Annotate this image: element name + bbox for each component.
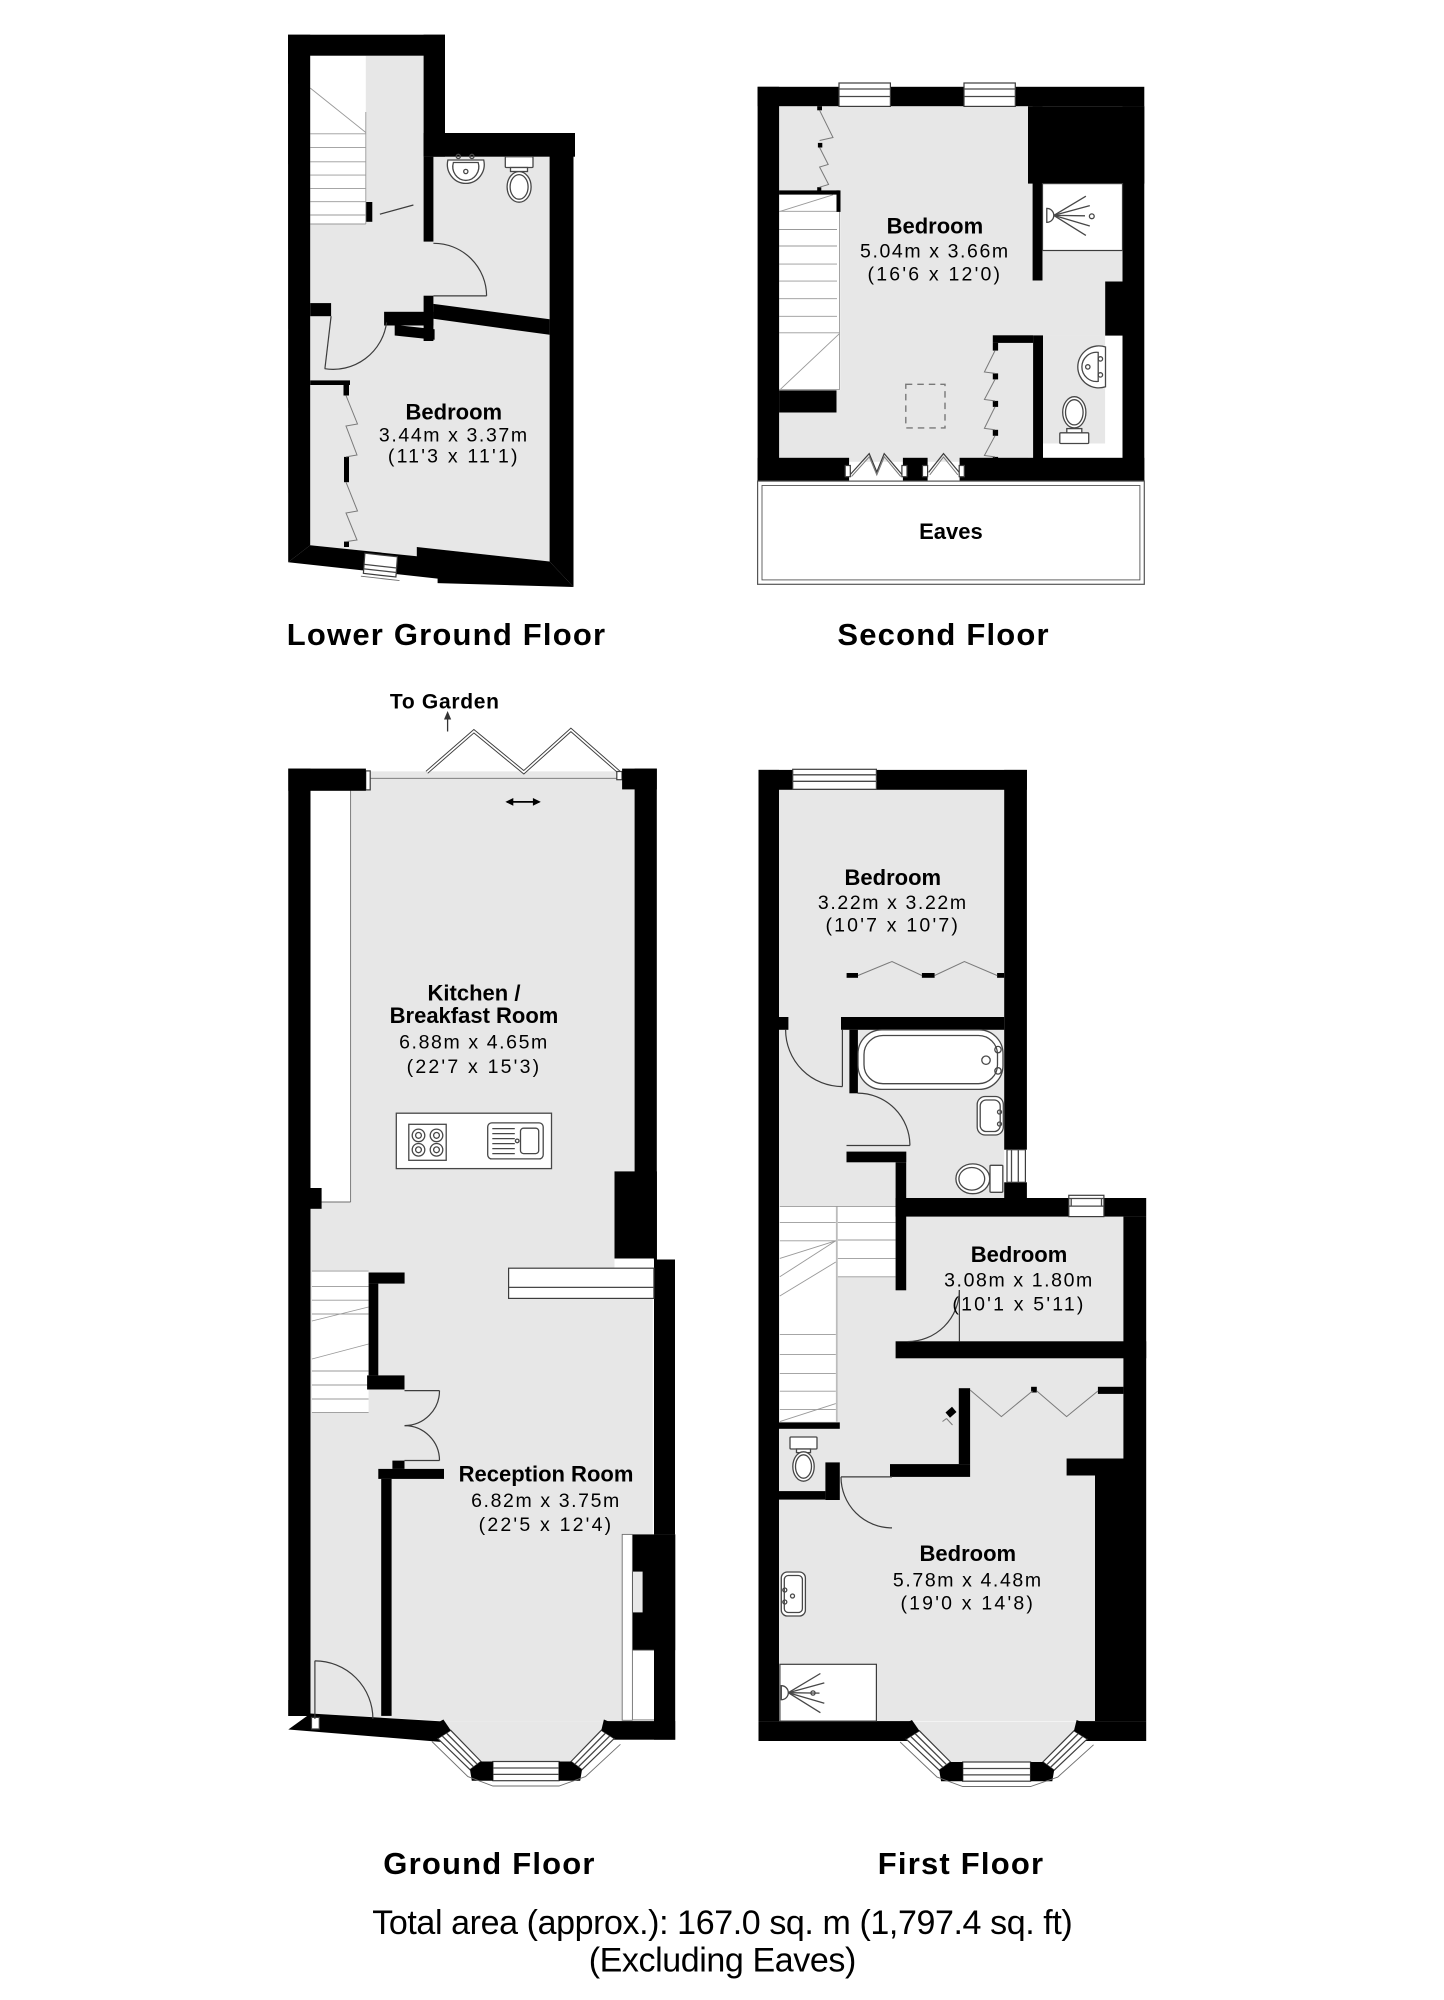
svg-text:Eaves: Eaves: [919, 519, 983, 544]
svg-text:(11'3 x 11'1): (11'3 x 11'1): [388, 446, 520, 468]
svg-text:3.44m x 3.37m: 3.44m x 3.37m: [379, 425, 529, 447]
svg-text:5.04m x 3.66m: 5.04m x 3.66m: [860, 240, 1010, 262]
svg-text:Ground Floor: Ground Floor: [383, 1846, 595, 1881]
svg-text:3.08m x 1.80m: 3.08m x 1.80m: [944, 1270, 1094, 1292]
svg-text:(22'5 x 12'4): (22'5 x 12'4): [479, 1514, 614, 1536]
svg-text:Kitchen /: Kitchen /: [428, 981, 521, 1006]
svg-text:Second Floor: Second Floor: [837, 617, 1049, 652]
svg-text:(10'1 x 5'11): (10'1 x 5'11): [952, 1294, 1085, 1316]
svg-text:3.22m x 3.22m: 3.22m x 3.22m: [818, 892, 968, 914]
svg-text:Lower Ground Floor: Lower Ground Floor: [287, 617, 607, 652]
svg-text:Total area (approx.): 167.0 sq: Total area (approx.): 167.0 sq. m (1,797…: [372, 1904, 1072, 1942]
svg-text:5.78m x 4.48m: 5.78m x 4.48m: [893, 1570, 1043, 1592]
svg-text:Bedroom: Bedroom: [920, 1541, 1017, 1566]
svg-text:(19'0 x 14'8): (19'0 x 14'8): [900, 1593, 1035, 1615]
svg-text:(Excluding Eaves): (Excluding Eaves): [589, 1942, 856, 1980]
svg-text:Bedroom: Bedroom: [406, 399, 503, 424]
svg-text:Bedroom: Bedroom: [971, 1242, 1068, 1267]
svg-text:6.88m x 4.65m: 6.88m x 4.65m: [399, 1032, 549, 1054]
svg-text:Breakfast Room: Breakfast Room: [390, 1003, 559, 1028]
svg-text:6.82m x 3.75m: 6.82m x 3.75m: [471, 1490, 621, 1512]
svg-text:Bedroom: Bedroom: [845, 865, 942, 890]
svg-text:(10'7 x 10'7): (10'7 x 10'7): [825, 915, 960, 937]
svg-text:(22'7 x 15'3): (22'7 x 15'3): [407, 1056, 542, 1078]
svg-text:(16'6 x 12'0): (16'6 x 12'0): [868, 264, 1003, 286]
svg-text:Bedroom: Bedroom: [887, 214, 984, 239]
svg-text:Reception Room: Reception Room: [459, 1461, 634, 1486]
svg-text:First Floor: First Floor: [878, 1846, 1044, 1881]
svg-text:To Garden: To Garden: [390, 691, 500, 714]
